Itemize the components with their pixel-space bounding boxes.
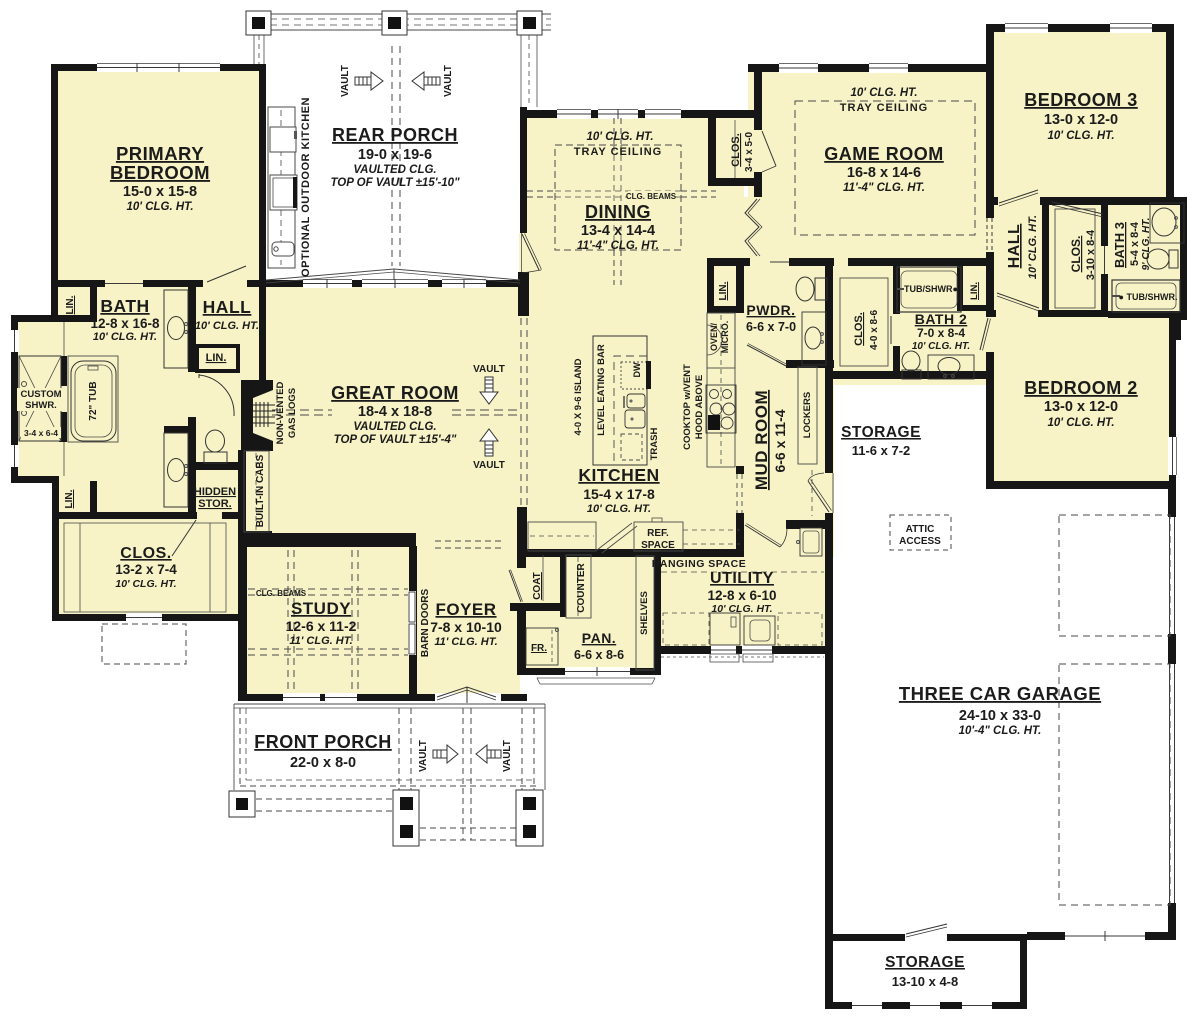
- svg-text:NON-VENTED: NON-VENTED: [275, 381, 286, 444]
- svg-text:HALL: HALL: [203, 297, 252, 317]
- svg-text:11' CLG. HT.: 11' CLG. HT.: [289, 635, 352, 647]
- svg-text:9' CLG. HT.: 9' CLG. HT.: [1141, 218, 1152, 271]
- svg-text:ATTIC: ATTIC: [906, 524, 935, 535]
- svg-text:22-0 x 8-0: 22-0 x 8-0: [290, 755, 356, 771]
- svg-text:CLG. BEAMS: CLG. BEAMS: [256, 589, 307, 598]
- svg-text:10'-4" CLG. HT.: 10'-4" CLG. HT.: [959, 725, 1042, 737]
- svg-text:13-0 x 12-0: 13-0 x 12-0: [1044, 112, 1118, 128]
- svg-text:10' CLG. HT.: 10' CLG. HT.: [850, 87, 917, 99]
- svg-text:16-8 x 14-6: 16-8 x 14-6: [847, 165, 921, 181]
- svg-text:TRASH: TRASH: [649, 428, 660, 461]
- svg-text:VAULT: VAULT: [443, 65, 454, 97]
- svg-text:VAULT: VAULT: [502, 740, 513, 772]
- svg-text:10' CLG. HT.: 10' CLG. HT.: [115, 578, 176, 590]
- svg-text:TUB/SHWR●: TUB/SHWR●: [904, 284, 958, 294]
- svg-text:COAT: COAT: [532, 572, 543, 600]
- svg-text:11'-4" CLG. HT.: 11'-4" CLG. HT.: [843, 182, 925, 194]
- svg-text:6-6 x 11-4: 6-6 x 11-4: [772, 409, 788, 472]
- svg-text:BEDROOM: BEDROOM: [110, 162, 210, 183]
- svg-text:● TUB/SHWR.: ● TUB/SHWR.: [1119, 292, 1178, 302]
- svg-text:10' CLG. HT.: 10' CLG. HT.: [126, 201, 193, 213]
- svg-text:CLOS.: CLOS.: [853, 312, 865, 346]
- svg-text:BUILT-IN CABS: BUILT-IN CABS: [255, 454, 266, 527]
- svg-text:REAR PORCH: REAR PORCH: [332, 125, 458, 145]
- svg-text:VAULTED CLG.: VAULTED CLG.: [353, 421, 436, 433]
- svg-text:BATH 3: BATH 3: [1112, 222, 1127, 268]
- svg-text:VAULTED CLG.: VAULTED CLG.: [353, 164, 436, 176]
- svg-text:STOR.: STOR.: [198, 498, 231, 510]
- svg-text:10' CLG. HT.: 10' CLG. HT.: [195, 320, 259, 332]
- svg-text:3-4 x 5-0: 3-4 x 5-0: [744, 132, 755, 172]
- svg-text:MUD ROOM: MUD ROOM: [752, 390, 771, 490]
- svg-text:LIN.: LIN.: [64, 489, 75, 508]
- svg-text:4-0 x 8-6: 4-0 x 8-6: [869, 310, 880, 350]
- svg-text:SHWR.: SHWR.: [25, 400, 57, 411]
- svg-text:6-6 x 7-0: 6-6 x 7-0: [746, 320, 796, 334]
- svg-text:4-0 X 9-6 ISLAND: 4-0 X 9-6 ISLAND: [573, 358, 584, 435]
- svg-text:FOYER: FOYER: [435, 600, 496, 619]
- svg-text:LIN.: LIN.: [65, 295, 76, 314]
- svg-text:COOKTOP w/VENT: COOKTOP w/VENT: [682, 364, 693, 450]
- svg-text:STORAGE: STORAGE: [841, 424, 921, 441]
- svg-text:LEVEL EATING BAR: LEVEL EATING BAR: [596, 344, 607, 436]
- svg-text:12-8 x 6-10: 12-8 x 6-10: [707, 588, 776, 603]
- svg-text:13-2 x 7-4: 13-2 x 7-4: [115, 562, 177, 577]
- svg-text:LIN.: LIN.: [206, 352, 227, 364]
- svg-text:THREE CAR GARAGE: THREE CAR GARAGE: [899, 683, 1101, 704]
- svg-text:TOP OF VAULT ±15'-4": TOP OF VAULT ±15'-4": [334, 434, 457, 446]
- svg-text:GAS LOGS: GAS LOGS: [287, 388, 298, 438]
- svg-text:19-0 x 19-6: 19-0 x 19-6: [358, 147, 432, 163]
- svg-text:11'-4" CLG. HT.: 11'-4" CLG. HT.: [577, 240, 659, 252]
- svg-text:BEDROOM 2: BEDROOM 2: [1024, 378, 1138, 398]
- svg-text:GAME ROOM: GAME ROOM: [824, 144, 944, 164]
- svg-text:PAN.: PAN.: [582, 630, 616, 646]
- svg-text:15-0 x 15-8: 15-0 x 15-8: [123, 184, 197, 200]
- svg-text:HALL: HALL: [1006, 224, 1023, 269]
- svg-text:COUNTER: COUNTER: [576, 563, 587, 613]
- svg-text:3-4 x 6-4: 3-4 x 6-4: [24, 428, 58, 438]
- svg-text:10' CLG. HT.: 10' CLG. HT.: [912, 341, 970, 352]
- svg-text:VAULT: VAULT: [473, 460, 505, 471]
- svg-text:FR.: FR.: [531, 643, 547, 654]
- svg-text:CUSTOM: CUSTOM: [21, 389, 62, 400]
- svg-text:OPTIONAL OUTDOOR KITCHEN: OPTIONAL OUTDOOR KITCHEN: [300, 97, 312, 277]
- svg-text:10' CLG. HT.: 10' CLG. HT.: [1047, 130, 1114, 142]
- svg-text:UTILITY: UTILITY: [710, 570, 774, 587]
- svg-text:TOP OF VAULT ±15'-10": TOP OF VAULT ±15'-10": [330, 177, 460, 189]
- svg-text:OVEN/: OVEN/: [709, 323, 719, 352]
- svg-text:10' CLG. HT.: 10' CLG. HT.: [1047, 417, 1114, 429]
- svg-text:HIDDEN: HIDDEN: [194, 486, 236, 498]
- svg-text:STORAGE: STORAGE: [885, 954, 965, 971]
- svg-text:VAULT: VAULT: [473, 364, 505, 375]
- svg-text:REF.: REF.: [647, 528, 669, 539]
- svg-text:VAULT: VAULT: [340, 65, 351, 97]
- svg-text:GREAT ROOM: GREAT ROOM: [331, 383, 459, 403]
- svg-text:LIN.: LIN.: [969, 282, 980, 300]
- svg-text:24-10 x 33-0: 24-10 x 33-0: [959, 708, 1041, 724]
- svg-text:KITCHEN: KITCHEN: [578, 465, 659, 485]
- svg-text:CLOS.: CLOS.: [120, 545, 171, 562]
- svg-text:18-4 x 18-8: 18-4 x 18-8: [358, 404, 432, 420]
- svg-text:DW: DW: [632, 362, 642, 377]
- svg-text:10' CLG. HT.: 10' CLG. HT.: [93, 331, 157, 343]
- svg-text:FRONT PORCH: FRONT PORCH: [254, 732, 392, 752]
- svg-text:CLOS.: CLOS.: [730, 133, 742, 167]
- svg-text:BATH: BATH: [100, 296, 149, 316]
- svg-text:LIN.: LIN.: [718, 281, 729, 300]
- svg-text:CLG. BEAMS: CLG. BEAMS: [626, 192, 677, 201]
- svg-text:10' CLG. HT.: 10' CLG. HT.: [587, 503, 651, 515]
- svg-text:HOOD ABOVE: HOOD ABOVE: [694, 375, 705, 440]
- svg-text:SHELVES: SHELVES: [639, 591, 650, 635]
- svg-text:PRIMARY: PRIMARY: [116, 143, 204, 164]
- svg-text:15-4 x 17-8: 15-4 x 17-8: [583, 486, 655, 502]
- svg-text:BATH 2: BATH 2: [915, 311, 968, 327]
- svg-text:13-4 x 14-4: 13-4 x 14-4: [581, 223, 655, 239]
- svg-text:13-10 x 4-8: 13-10 x 4-8: [892, 974, 959, 989]
- svg-text:SPACE: SPACE: [641, 540, 675, 551]
- svg-text:VAULT: VAULT: [418, 740, 429, 772]
- svg-text:5-4 x 8-4: 5-4 x 8-4: [1129, 221, 1141, 266]
- svg-text:12-8 x 16-8: 12-8 x 16-8: [90, 316, 160, 331]
- svg-text:BEDROOM 3: BEDROOM 3: [1024, 90, 1138, 110]
- svg-text:TRAY CEILING: TRAY CEILING: [574, 146, 662, 158]
- svg-text:HANGING SPACE: HANGING SPACE: [652, 558, 746, 570]
- svg-text:10' CLG. HT.: 10' CLG. HT.: [1027, 215, 1039, 279]
- svg-text:LOCKERS: LOCKERS: [802, 392, 813, 438]
- svg-text:7-0 x 8-4: 7-0 x 8-4: [917, 326, 965, 340]
- svg-text:DINING: DINING: [585, 202, 651, 222]
- svg-text:3-10 x 8-4: 3-10 x 8-4: [1085, 229, 1097, 280]
- svg-text:6-6 x 8-6: 6-6 x 8-6: [574, 648, 624, 662]
- svg-text:TRAY CEILING: TRAY CEILING: [840, 102, 928, 114]
- svg-text:PWDR.: PWDR.: [746, 302, 795, 318]
- svg-text:STUDY: STUDY: [291, 599, 351, 618]
- svg-text:10' CLG. HT.: 10' CLG. HT.: [711, 603, 772, 615]
- svg-text:7-8 x 10-10: 7-8 x 10-10: [430, 619, 502, 635]
- svg-text:11-6 x 7-2: 11-6 x 7-2: [852, 443, 911, 458]
- svg-text:10' CLG. HT.: 10' CLG. HT.: [586, 131, 653, 143]
- svg-text:MICRO.: MICRO.: [720, 321, 730, 354]
- svg-text:CLOS.: CLOS.: [1069, 236, 1083, 273]
- svg-text:72" TUB: 72" TUB: [88, 381, 99, 420]
- svg-text:ACCESS: ACCESS: [899, 536, 941, 547]
- svg-text:13-0 x 12-0: 13-0 x 12-0: [1044, 399, 1118, 415]
- svg-text:11' CLG. HT.: 11' CLG. HT.: [434, 636, 497, 648]
- svg-text:12-6 x 11-2: 12-6 x 11-2: [286, 618, 357, 634]
